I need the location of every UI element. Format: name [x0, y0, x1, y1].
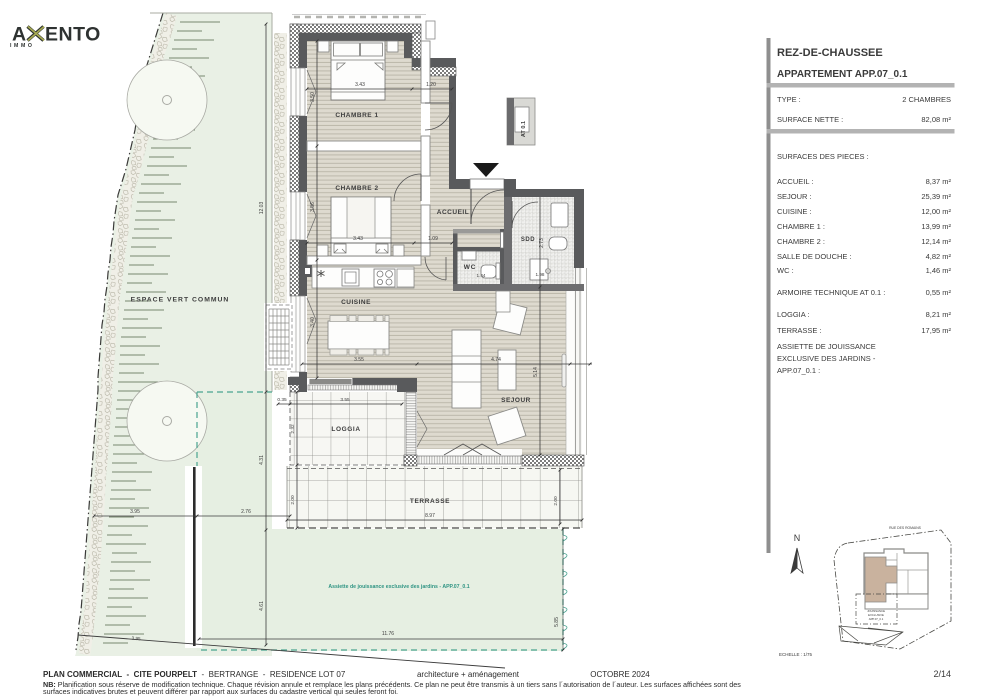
svg-text:3.95: 3.95 [130, 509, 140, 515]
svg-text:OCTOBRE 2024: OCTOBRE 2024 [590, 670, 650, 679]
svg-text:APPARTEMENT APP.07_0.1: APPARTEMENT APP.07_0.1 [777, 69, 908, 80]
svg-text:SDD: SDD [521, 237, 535, 243]
svg-text:2.00: 2.00 [553, 496, 559, 506]
svg-text:CHAMBRE 1: CHAMBRE 1 [335, 112, 378, 119]
svg-text:2.73: 2.73 [539, 238, 545, 248]
svg-text:2.32: 2.32 [290, 424, 296, 434]
svg-text:PLAN COMMERCIAL - CITE POURP: PLAN COMMERCIAL - CITE POURPELT - BERTRA… [43, 670, 346, 679]
svg-text:3.55: 3.55 [340, 397, 350, 403]
svg-text:IMMO: IMMO [10, 43, 35, 49]
svg-text:12.03: 12.03 [259, 202, 265, 215]
svg-text:4.61: 4.61 [259, 601, 265, 611]
svg-text:ECHELLE : 1/75: ECHELLE : 1/75 [779, 652, 813, 657]
svg-text:CHAMBRE 2: CHAMBRE 2 [335, 185, 378, 192]
svg-text:4,82 m²: 4,82 m² [926, 252, 952, 261]
svg-text:LOGGIA: LOGGIA [331, 426, 360, 433]
svg-text:CUISINE :: CUISINE : [777, 207, 812, 216]
svg-text:2/14: 2/14 [933, 669, 951, 679]
svg-text:TERRASSE: TERRASSE [410, 498, 450, 505]
svg-text:WC: WC [464, 264, 476, 271]
svg-text:ACCUEIL :: ACCUEIL : [777, 177, 813, 186]
svg-text:0.35: 0.35 [277, 397, 287, 403]
svg-text:CHAMBRE 1 :: CHAMBRE 1 : [777, 222, 825, 231]
svg-text:12,00 m²: 12,00 m² [921, 207, 951, 216]
svg-text:3.95: 3.95 [131, 636, 141, 642]
svg-text:SURFACE NETTE :: SURFACE NETTE : [777, 115, 843, 124]
svg-text:ACCUEIL: ACCUEIL [437, 209, 469, 216]
svg-text:82,08 m²: 82,08 m² [921, 115, 951, 124]
svg-text:SURFACES DES PIECES :: SURFACES DES PIECES : [777, 152, 869, 161]
svg-text:WC :: WC : [777, 266, 794, 275]
svg-text:TYPE :: TYPE : [777, 95, 801, 104]
svg-text:TERRASSE :: TERRASSE : [777, 326, 822, 335]
svg-text:architecture + aménagement: architecture + aménagement [417, 670, 520, 679]
svg-text:1.98: 1.98 [536, 272, 545, 277]
svg-text:LOGGIA :: LOGGIA : [777, 310, 810, 319]
svg-text:SEJOUR :: SEJOUR : [777, 192, 812, 201]
svg-text:1,46 m²: 1,46 m² [926, 266, 952, 275]
svg-text:8.97: 8.97 [425, 513, 435, 519]
svg-text:ARMOIRE TECHNIQUE AT 0.1 :: ARMOIRE TECHNIQUE AT 0.1 : [777, 288, 885, 297]
svg-text:3.50: 3.50 [310, 92, 316, 102]
svg-text:CHAMBRE 2 :: CHAMBRE 2 : [777, 237, 825, 246]
svg-text:11.76: 11.76 [382, 631, 394, 637]
svg-text:3.43: 3.43 [355, 82, 365, 88]
svg-text:3.40: 3.40 [310, 317, 316, 327]
svg-text:3.55: 3.55 [354, 357, 364, 363]
svg-text:REZ-DE-CHAUSSEE: REZ-DE-CHAUSSEE [777, 47, 883, 59]
svg-text:8,21 m²: 8,21 m² [926, 310, 952, 319]
svg-text:25,39 m²: 25,39 m² [921, 192, 951, 201]
svg-text:5.14: 5.14 [533, 367, 539, 377]
svg-text:surfaces indicatives brutes et: surfaces indicatives brutes et peuvent d… [43, 687, 398, 696]
svg-text:ESPACE VERT COMMUN: ESPACE VERT COMMUN [131, 297, 230, 304]
svg-text:2 CHAMBRES: 2 CHAMBRES [902, 95, 951, 104]
svg-text:AT 0.1: AT 0.1 [521, 121, 527, 137]
svg-text:4.31: 4.31 [259, 455, 265, 465]
svg-text:EXCLUSIVE DES JARDINS -: EXCLUSIVE DES JARDINS - [777, 354, 876, 363]
svg-text:1.09: 1.09 [428, 236, 438, 242]
svg-text:3.56: 3.56 [310, 202, 316, 212]
svg-text:APP.07_0.1: APP.07_0.1 [869, 617, 884, 621]
svg-text:13,99 m²: 13,99 m² [921, 222, 951, 231]
svg-text:4.74: 4.74 [491, 357, 501, 363]
svg-text:5.85: 5.85 [554, 617, 560, 627]
svg-text:0,55 m²: 0,55 m² [926, 288, 952, 297]
svg-text:N: N [794, 533, 801, 543]
svg-text:1.44: 1.44 [477, 273, 486, 278]
svg-text:8,37 m²: 8,37 m² [926, 177, 952, 186]
svg-text:SALLE DE DOUCHE :: SALLE DE DOUCHE : [777, 252, 852, 261]
svg-text:17,95 m²: 17,95 m² [921, 326, 951, 335]
svg-text:ASSIETTE DE JOUISSANCE: ASSIETTE DE JOUISSANCE [777, 342, 876, 351]
svg-text:ENTO: ENTO [45, 24, 101, 46]
svg-text:RUE DES ROMAINS: RUE DES ROMAINS [889, 526, 922, 530]
svg-text:1.20: 1.20 [426, 82, 436, 88]
svg-text:12,14 m²: 12,14 m² [921, 237, 951, 246]
svg-text:CUISINE: CUISINE [341, 299, 371, 306]
svg-text:2.76: 2.76 [241, 509, 251, 515]
svg-text:3.43: 3.43 [353, 236, 363, 242]
svg-text:2.00: 2.00 [290, 495, 296, 505]
svg-text:SEJOUR: SEJOUR [501, 397, 531, 404]
svg-text:APP.07_0.1 :: APP.07_0.1 : [777, 366, 820, 375]
svg-text:Assiette de jouissance exclusi: Assiette de jouissance exclusive des jar… [328, 584, 469, 590]
